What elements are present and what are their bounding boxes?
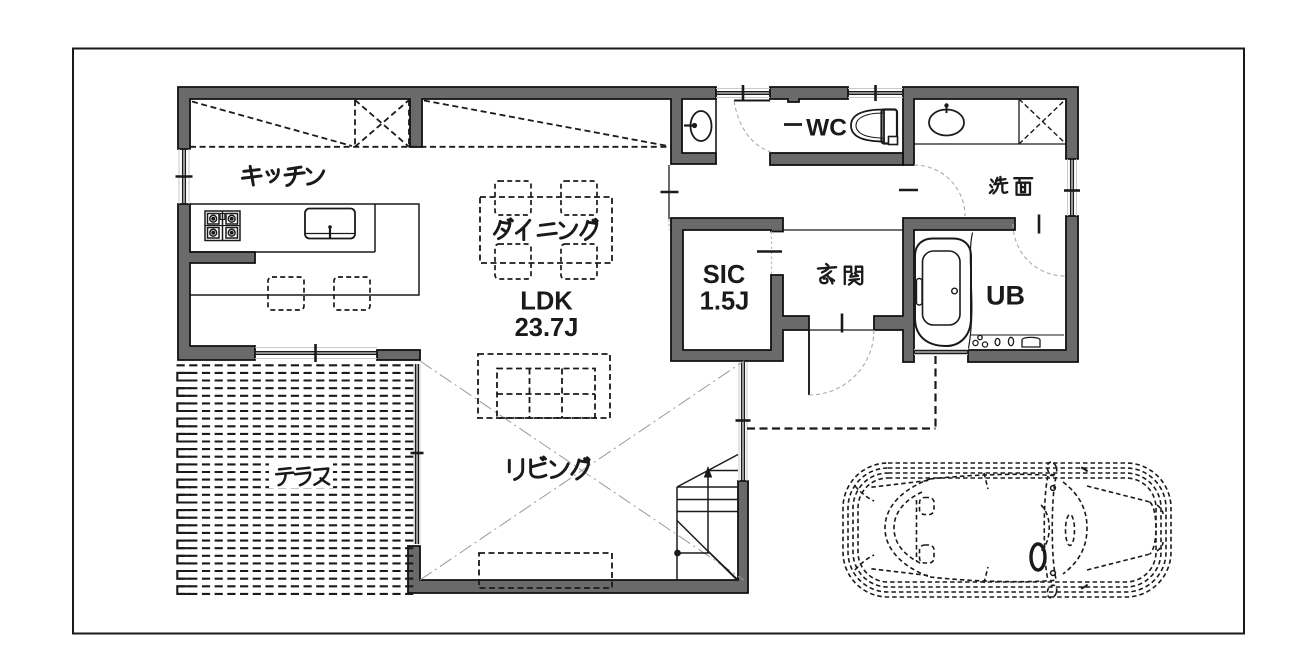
svg-text:UB: UB bbox=[986, 281, 1025, 311]
svg-text:SIC: SIC bbox=[703, 261, 746, 289]
svg-text:23.7J: 23.7J bbox=[515, 314, 579, 342]
svg-text:WC: WC bbox=[806, 115, 847, 142]
svg-text:LDK: LDK bbox=[520, 288, 573, 316]
svg-text:1.5J: 1.5J bbox=[700, 288, 750, 316]
